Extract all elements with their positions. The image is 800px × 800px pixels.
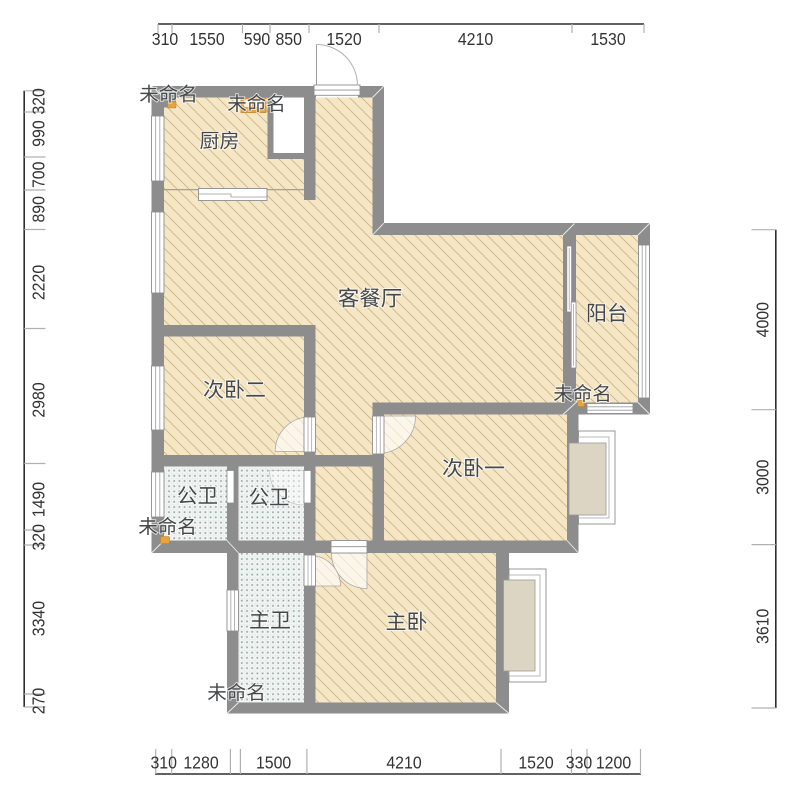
svg-text:1530: 1530 (590, 29, 626, 49)
svg-text:310: 310 (150, 753, 177, 773)
svg-text:590: 590 (244, 29, 271, 49)
svg-text:4210: 4210 (458, 29, 494, 49)
svg-text:310: 310 (152, 29, 179, 49)
svg-text:4000: 4000 (753, 302, 773, 338)
svg-text:1490: 1490 (29, 482, 49, 518)
svg-text:330: 330 (566, 753, 593, 773)
svg-text:2980: 2980 (29, 382, 49, 418)
svg-text:3340: 3340 (29, 601, 49, 637)
svg-text:850: 850 (275, 29, 302, 49)
svg-text:1280: 1280 (183, 753, 219, 773)
svg-text:270: 270 (29, 688, 49, 715)
svg-text:3000: 3000 (753, 459, 773, 495)
svg-text:1520: 1520 (326, 29, 362, 49)
svg-text:320: 320 (29, 88, 49, 115)
svg-text:1200: 1200 (596, 753, 632, 773)
svg-text:320: 320 (29, 524, 49, 551)
svg-text:2220: 2220 (29, 265, 49, 301)
svg-text:890: 890 (29, 196, 49, 223)
svg-text:700: 700 (29, 161, 49, 188)
svg-text:4210: 4210 (386, 753, 422, 773)
svg-text:1500: 1500 (256, 753, 292, 773)
svg-text:1550: 1550 (189, 29, 225, 49)
svg-text:3610: 3610 (753, 608, 773, 644)
svg-text:1520: 1520 (518, 753, 554, 773)
svg-text:990: 990 (29, 120, 49, 147)
